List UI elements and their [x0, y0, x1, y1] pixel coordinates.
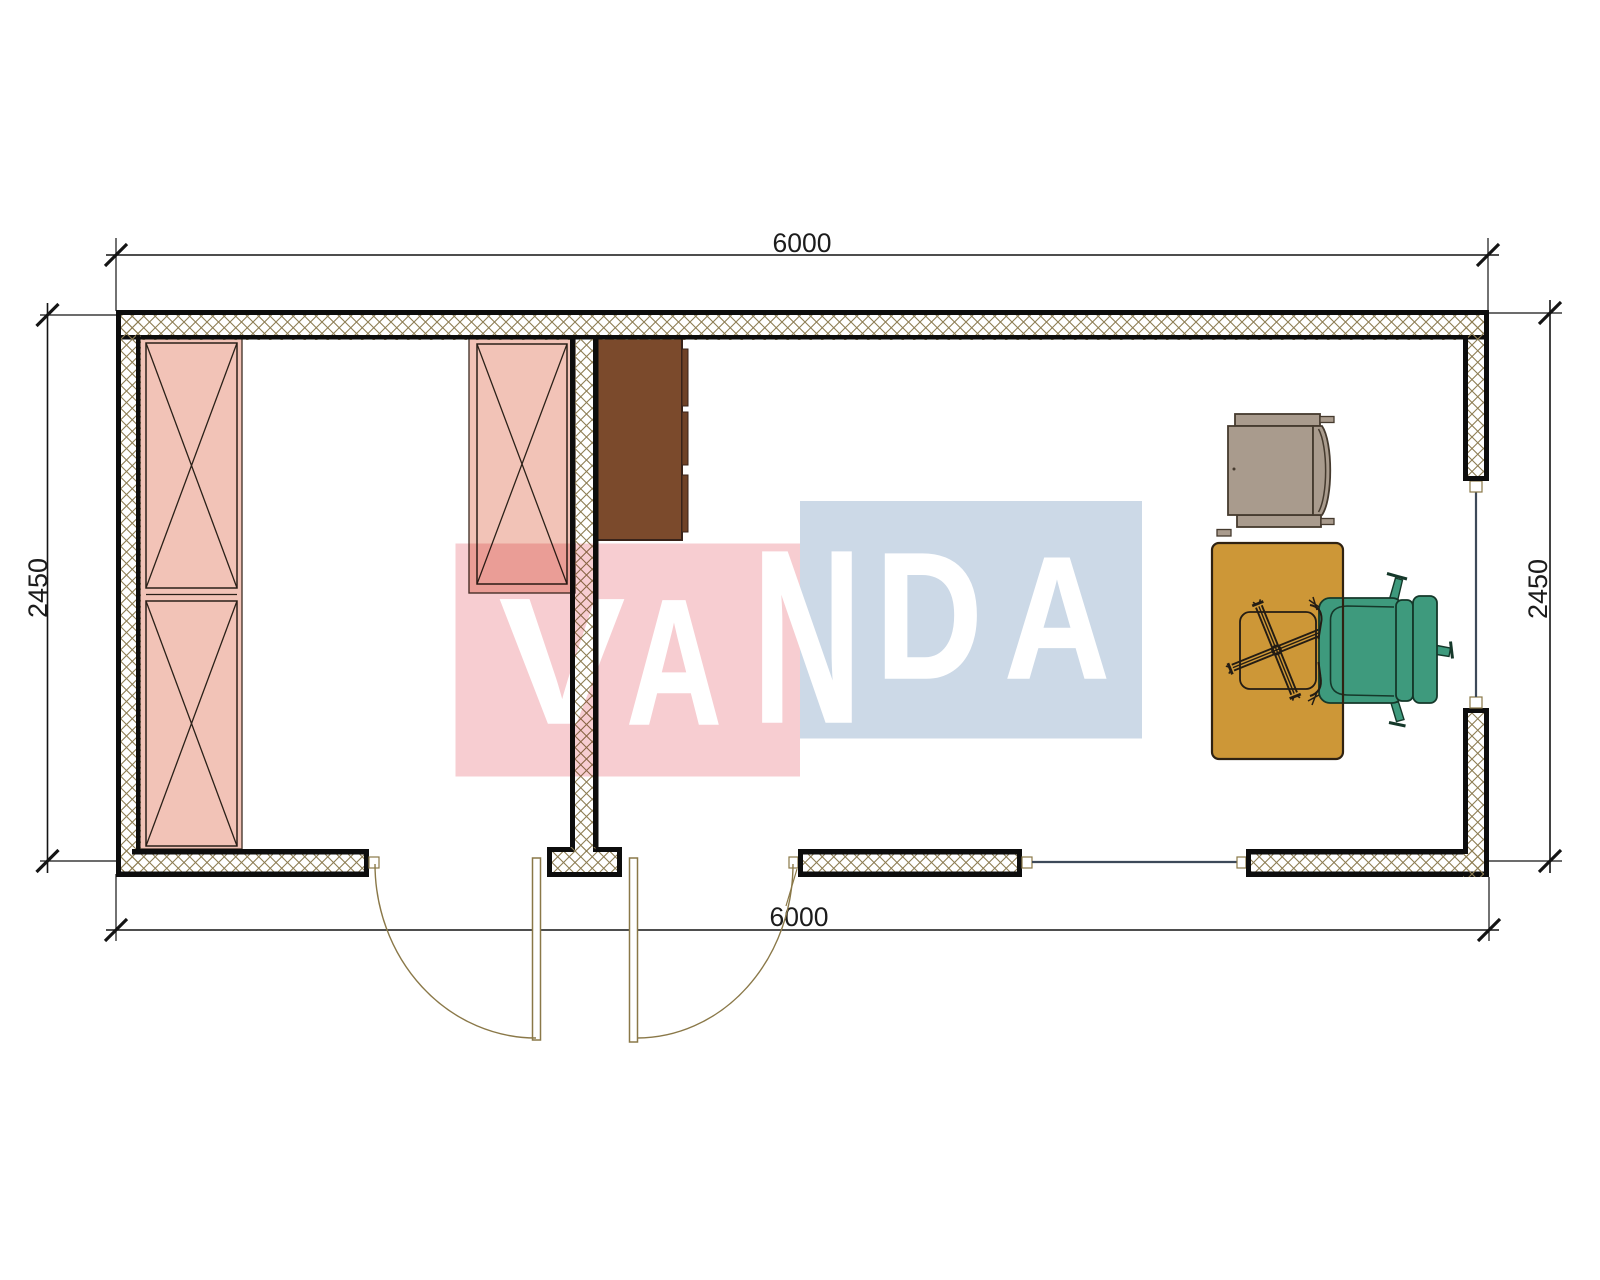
svg-text:N: N	[753, 499, 862, 775]
svg-text:D: D	[876, 516, 983, 717]
svg-text:A: A	[1005, 520, 1110, 715]
svg-text:V: V	[500, 561, 625, 761]
svg-text:A: A	[627, 562, 722, 762]
